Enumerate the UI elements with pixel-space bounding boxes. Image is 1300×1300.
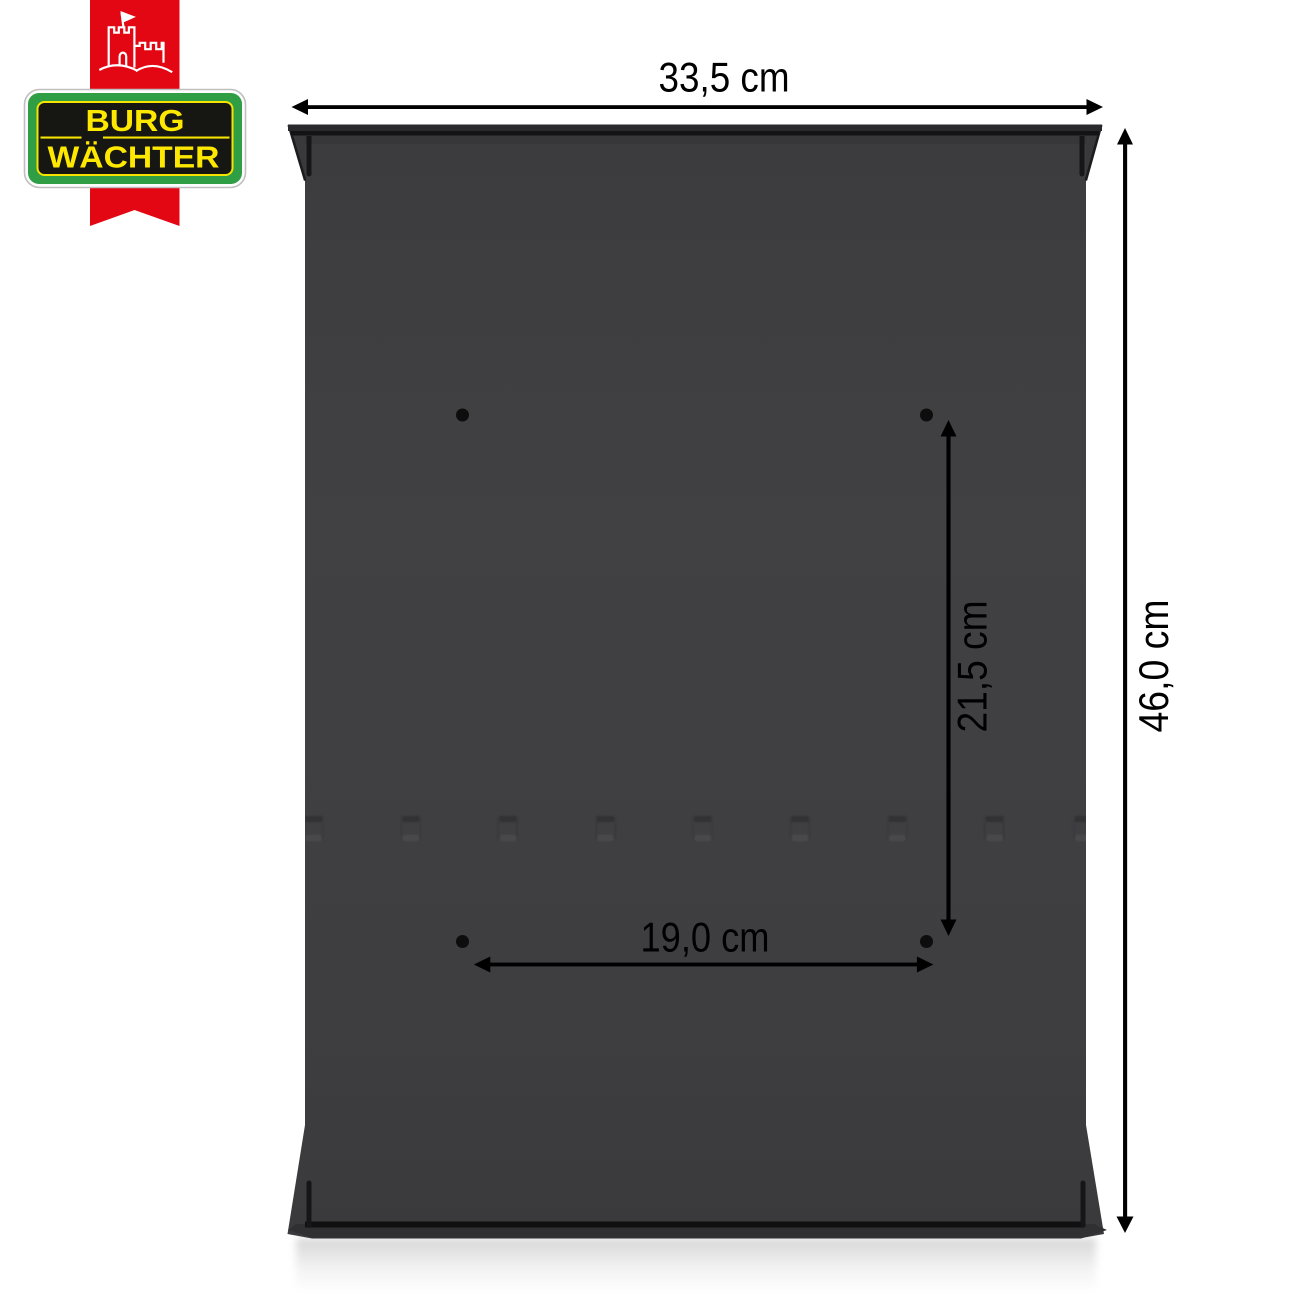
- svg-text:46,0 cm: 46,0 cm: [1130, 600, 1177, 733]
- svg-text:33,5 cm: 33,5 cm: [659, 54, 790, 101]
- svg-text:BURG: BURG: [86, 104, 185, 138]
- svg-text:WÄCHTER: WÄCHTER: [48, 140, 220, 174]
- svg-text:19,0 cm: 19,0 cm: [641, 914, 770, 961]
- svg-text:21,5 cm: 21,5 cm: [949, 601, 996, 733]
